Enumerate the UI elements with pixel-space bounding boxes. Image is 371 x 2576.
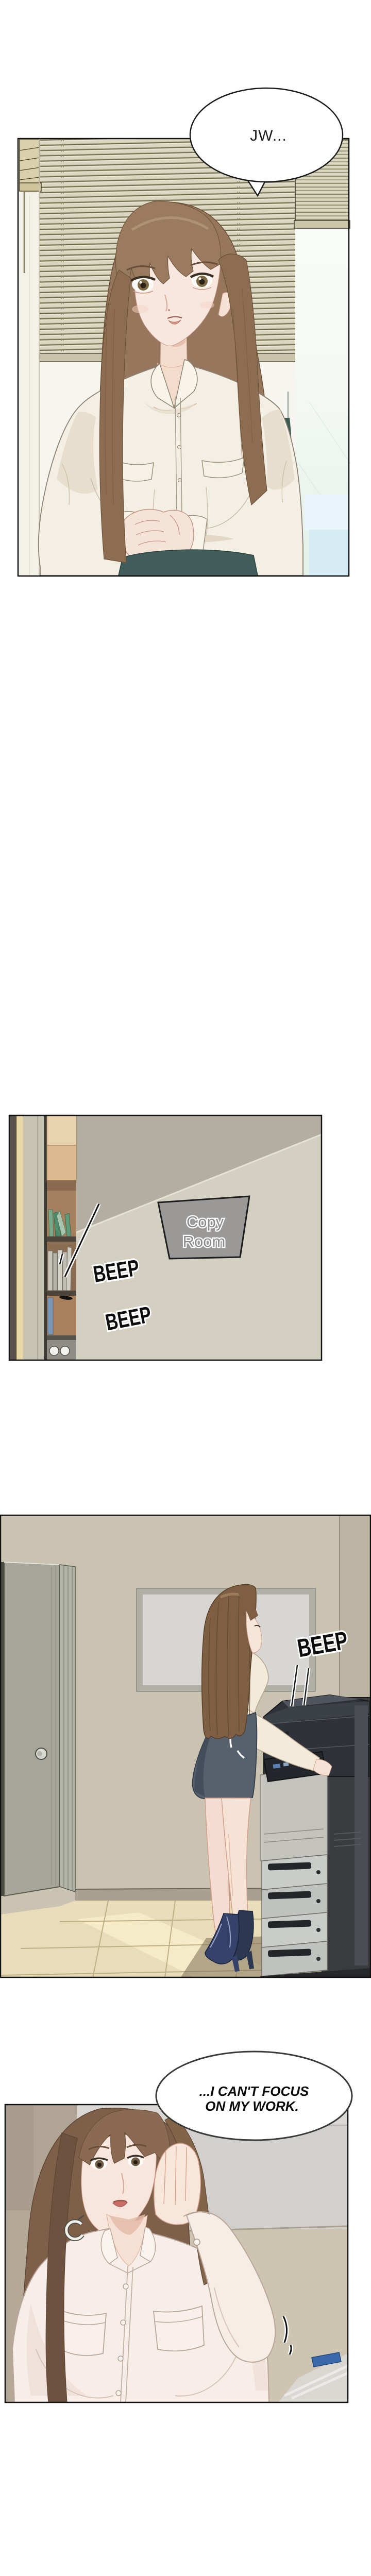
svg-text:ON MY WORK.: ON MY WORK. [205,2098,299,2114]
svg-text:Room: Room [183,1232,226,1250]
svg-text:...I CAN'T FOCUS: ...I CAN'T FOCUS [199,2083,309,2099]
svg-text:Copy: Copy [187,1213,224,1231]
svg-text:JW...: JW... [250,127,287,144]
